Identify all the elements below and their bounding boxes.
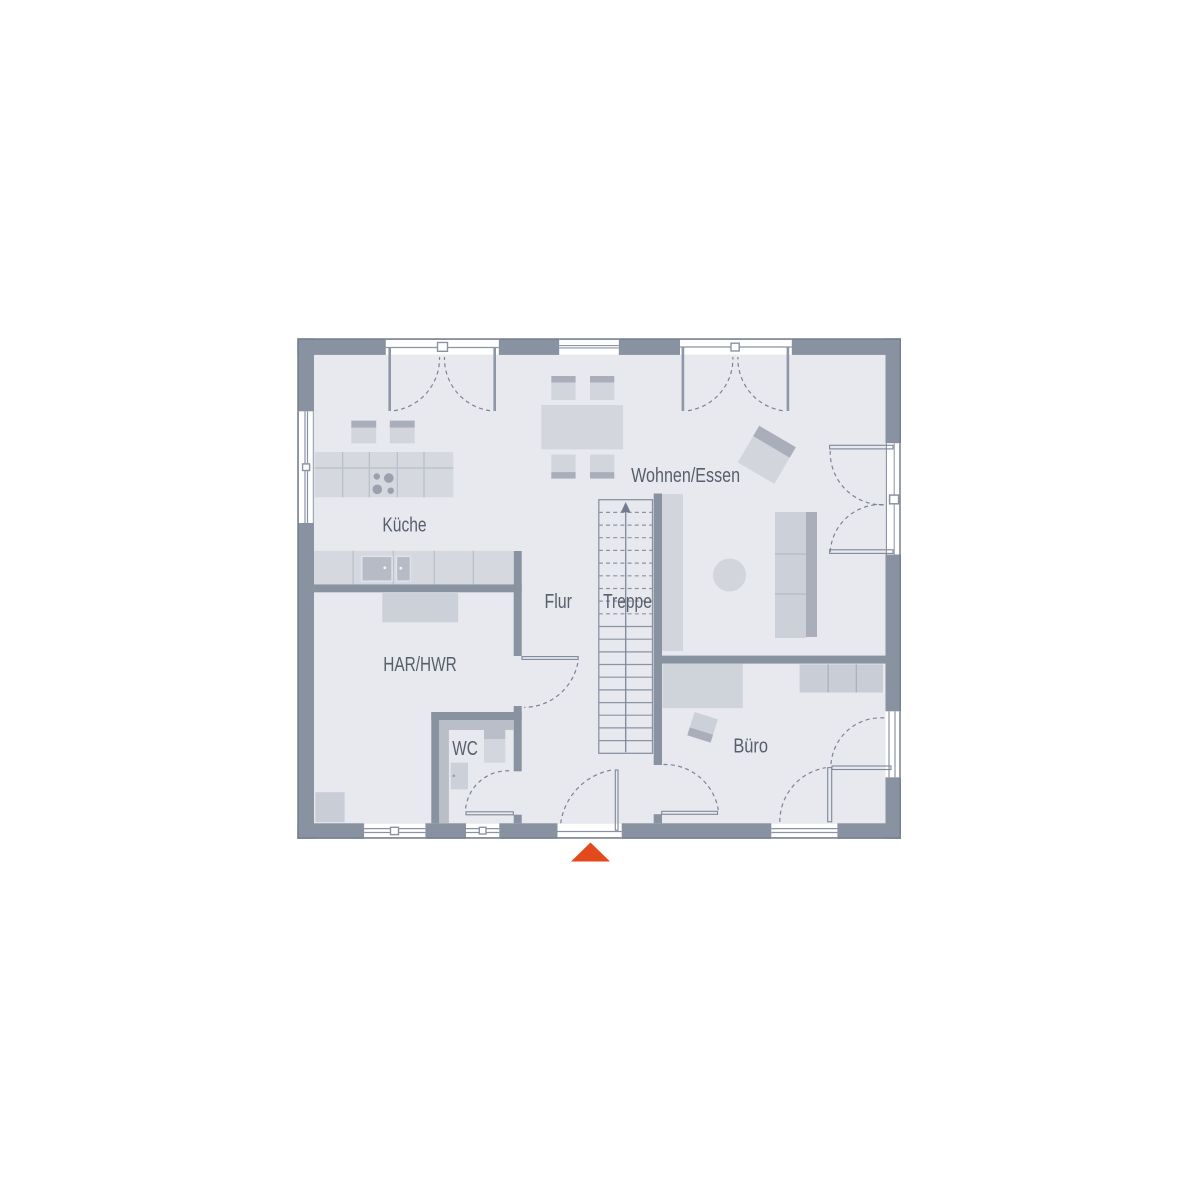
svg-text:HAR/HWR: HAR/HWR <box>383 654 456 676</box>
svg-text:Wohnen/Essen: Wohnen/Essen <box>631 465 740 487</box>
svg-text:Flur: Flur <box>544 591 572 613</box>
svg-text:Küche: Küche <box>382 514 426 536</box>
svg-text:WC: WC <box>452 738 478 760</box>
svg-text:Büro: Büro <box>733 735 768 757</box>
svg-text:Treppe: Treppe <box>603 591 652 613</box>
